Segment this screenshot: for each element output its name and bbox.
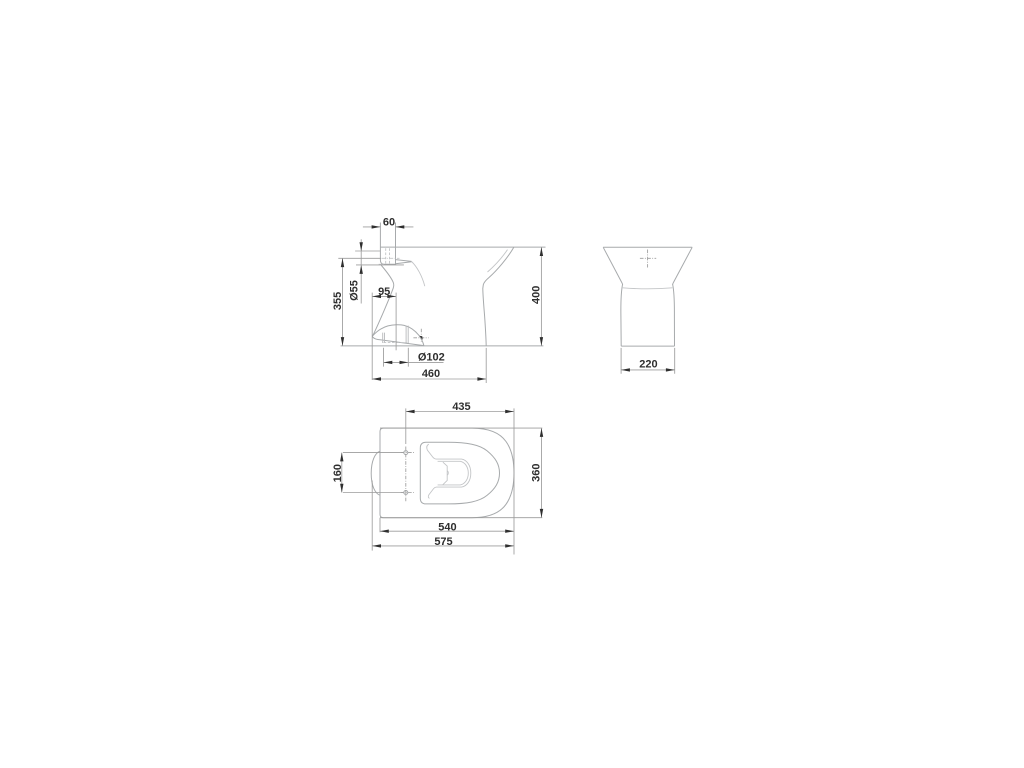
svg-text:460: 460 <box>422 368 440 380</box>
svg-text:435: 435 <box>452 401 470 413</box>
svg-text:Ø102: Ø102 <box>418 352 445 364</box>
svg-text:95: 95 <box>378 286 390 298</box>
svg-text:220: 220 <box>639 359 657 371</box>
svg-text:575: 575 <box>434 536 452 548</box>
svg-text:160: 160 <box>332 464 344 482</box>
svg-text:Ø55: Ø55 <box>348 280 360 301</box>
svg-text:60: 60 <box>383 217 395 229</box>
svg-text:360: 360 <box>531 464 543 482</box>
svg-text:355: 355 <box>332 292 344 310</box>
svg-text:400: 400 <box>530 286 542 304</box>
svg-text:540: 540 <box>438 522 456 534</box>
